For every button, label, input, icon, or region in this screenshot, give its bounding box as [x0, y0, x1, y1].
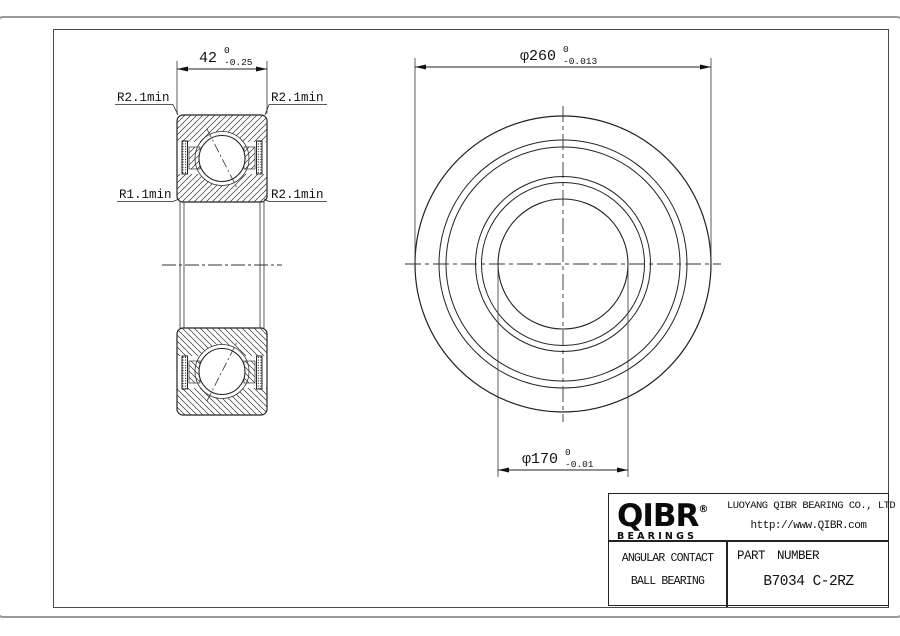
- logo-sub-text: BEARINGS: [617, 531, 727, 542]
- company-website: http://www.QIBR.com: [727, 520, 890, 532]
- title-block: QIBR® BEARINGS LUOYANG QIBR BEARING CO.,…: [608, 493, 889, 606]
- part-number-value: B7034 C-2RZ: [727, 574, 890, 590]
- outer-dia-tol-bottom: -0.013: [563, 56, 598, 67]
- outer-dia-text: φ260: [520, 48, 556, 65]
- front-view-centerlines: [405, 106, 721, 422]
- arrow-right: [700, 65, 711, 70]
- section-top: [177, 115, 267, 202]
- inner-ring-face-circle: [482, 183, 645, 346]
- arrow-left: [498, 468, 509, 473]
- part-number-label: PART NUMBER: [737, 549, 819, 563]
- arrow-left: [415, 65, 426, 70]
- product-line-2: BALL BEARING: [609, 570, 726, 593]
- width-dimension: 42 0 -0.25: [177, 45, 267, 114]
- width-dim-text: 42: [199, 50, 217, 67]
- arrow-right: [256, 67, 267, 72]
- product-description: ANGULAR CONTACT BALL BEARING: [609, 547, 726, 593]
- section-bottom: [177, 328, 267, 415]
- company-logo: QIBR® BEARINGS: [617, 495, 727, 539]
- company-name: LUOYANG QIBR BEARING CO., LTD: [727, 500, 890, 512]
- radius-label-top-right: R2.1min: [271, 91, 324, 105]
- radius-label-bottom-right: R2.1min: [271, 188, 324, 202]
- width-dim-tol-top: 0: [224, 45, 230, 56]
- logo-wordmark: QIBR®: [617, 495, 727, 531]
- logo-brand-text: QIBR: [617, 498, 698, 534]
- bore-dia-text: φ170: [522, 451, 558, 468]
- outer-dia-tol-top: 0: [563, 44, 569, 55]
- drawing-sheet: 42 0 -0.25 R2.1min R2.1min R1.1min R2.1m…: [0, 0, 900, 636]
- radius-label-bottom-left: R1.1min: [119, 188, 172, 202]
- arrow-left: [177, 67, 188, 72]
- width-dim-tol-bottom: -0.25: [224, 57, 253, 68]
- section-view: 42 0 -0.25 R2.1min R2.1min R1.1min R2.1m…: [115, 45, 327, 415]
- bore-dia-tol-bottom: -0.01: [565, 459, 594, 470]
- bore-dia-tol-top: 0: [565, 447, 571, 458]
- product-line-1: ANGULAR CONTACT: [609, 547, 726, 570]
- radius-label-top-left: R2.1min: [117, 91, 170, 105]
- arrow-right: [617, 468, 628, 473]
- front-view: φ260 0 -0.013 φ170 0 -0.01: [405, 44, 721, 477]
- registered-trademark-symbol: ®: [698, 504, 707, 515]
